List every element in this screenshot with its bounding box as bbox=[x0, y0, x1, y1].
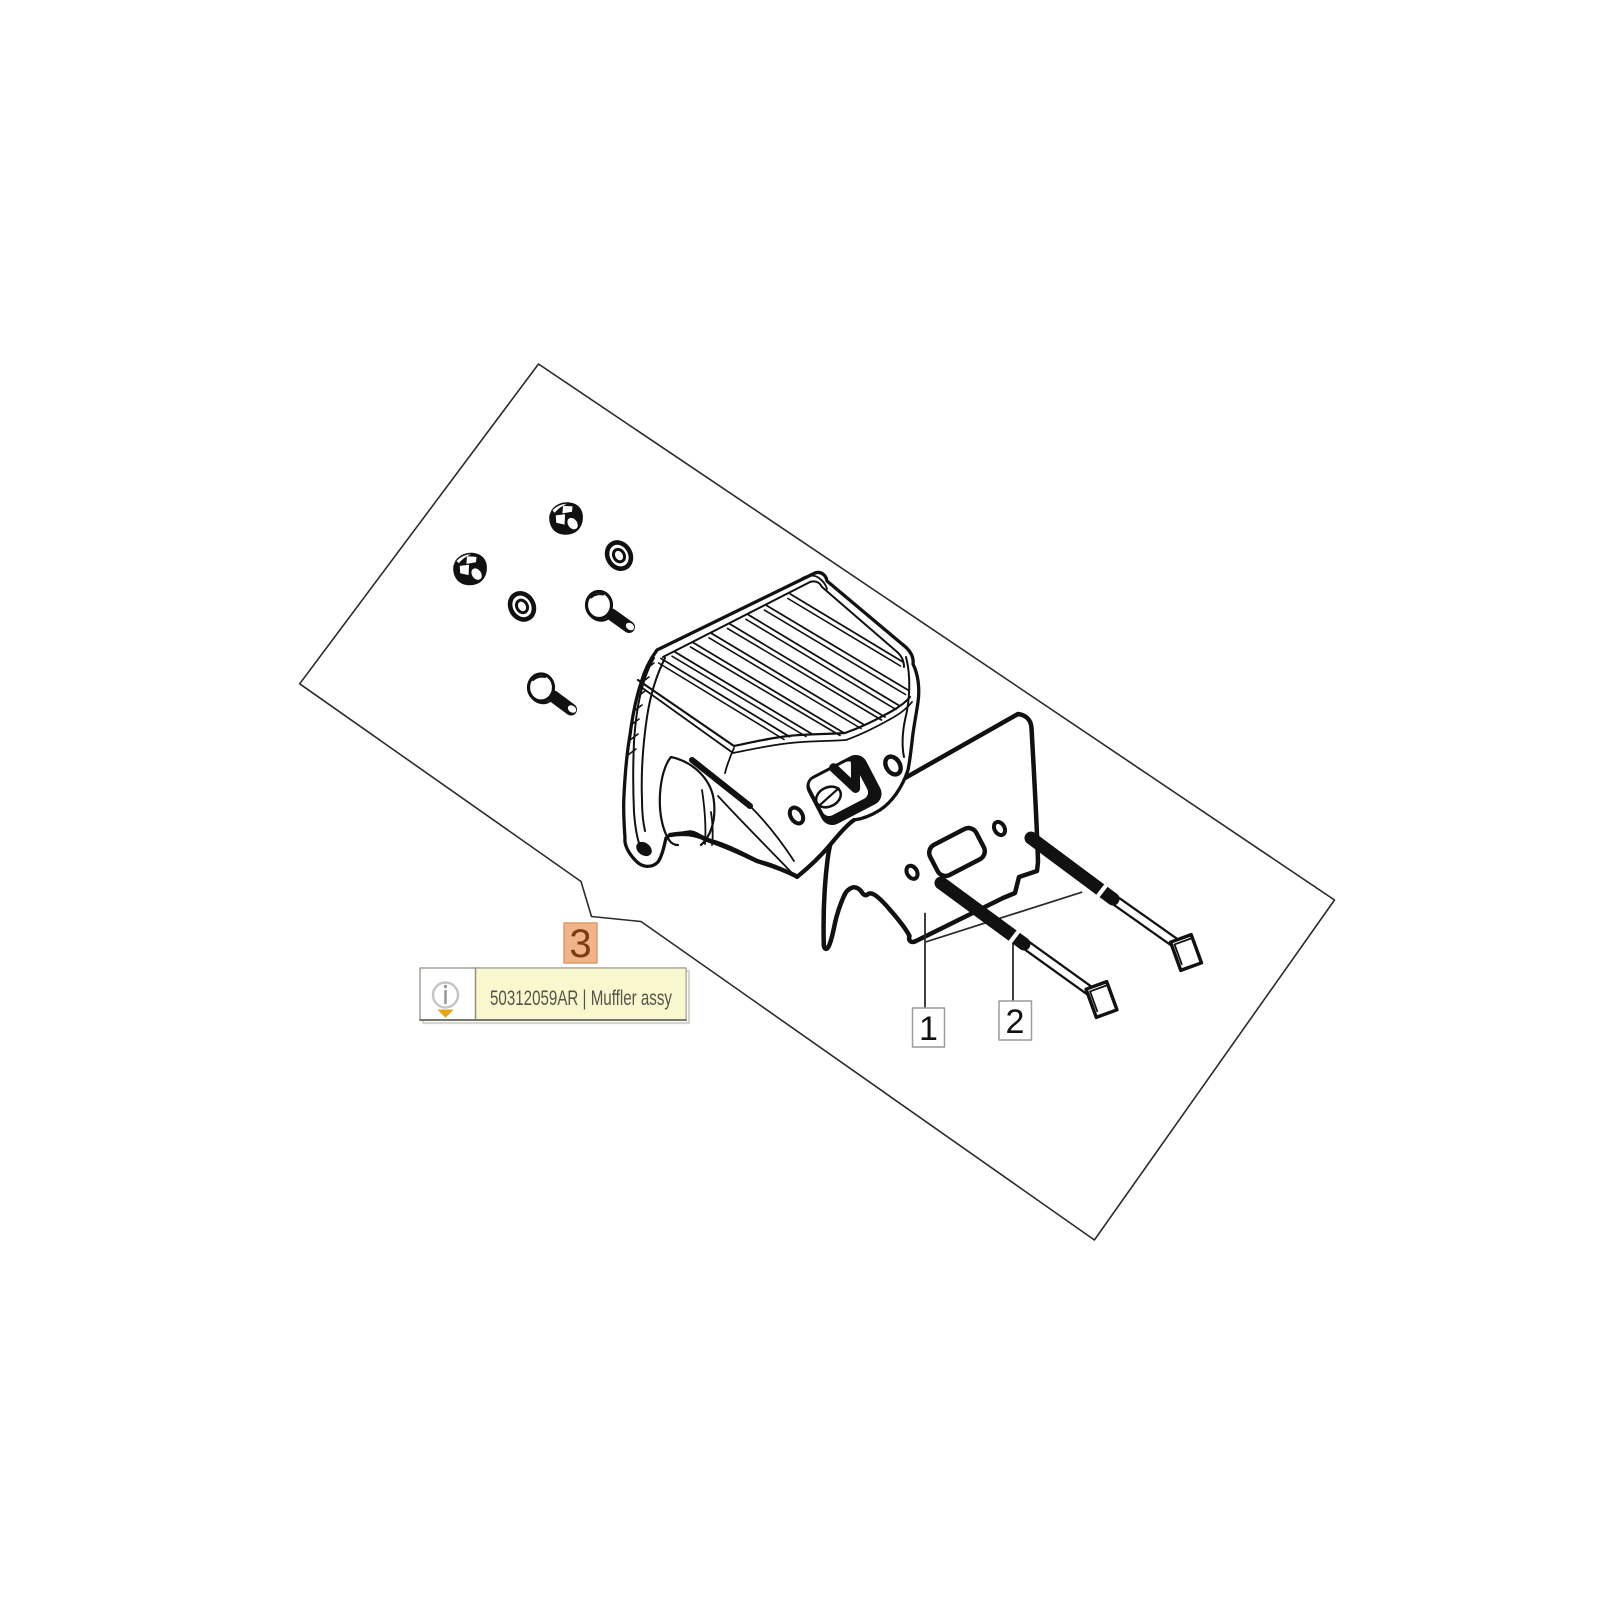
svg-text:50312059AR | Muffler assy: 50312059AR | Muffler assy bbox=[490, 986, 672, 1010]
svg-text:1: 1 bbox=[919, 1010, 938, 1048]
svg-text:2: 2 bbox=[1006, 1003, 1025, 1041]
svg-text:3: 3 bbox=[569, 922, 591, 966]
